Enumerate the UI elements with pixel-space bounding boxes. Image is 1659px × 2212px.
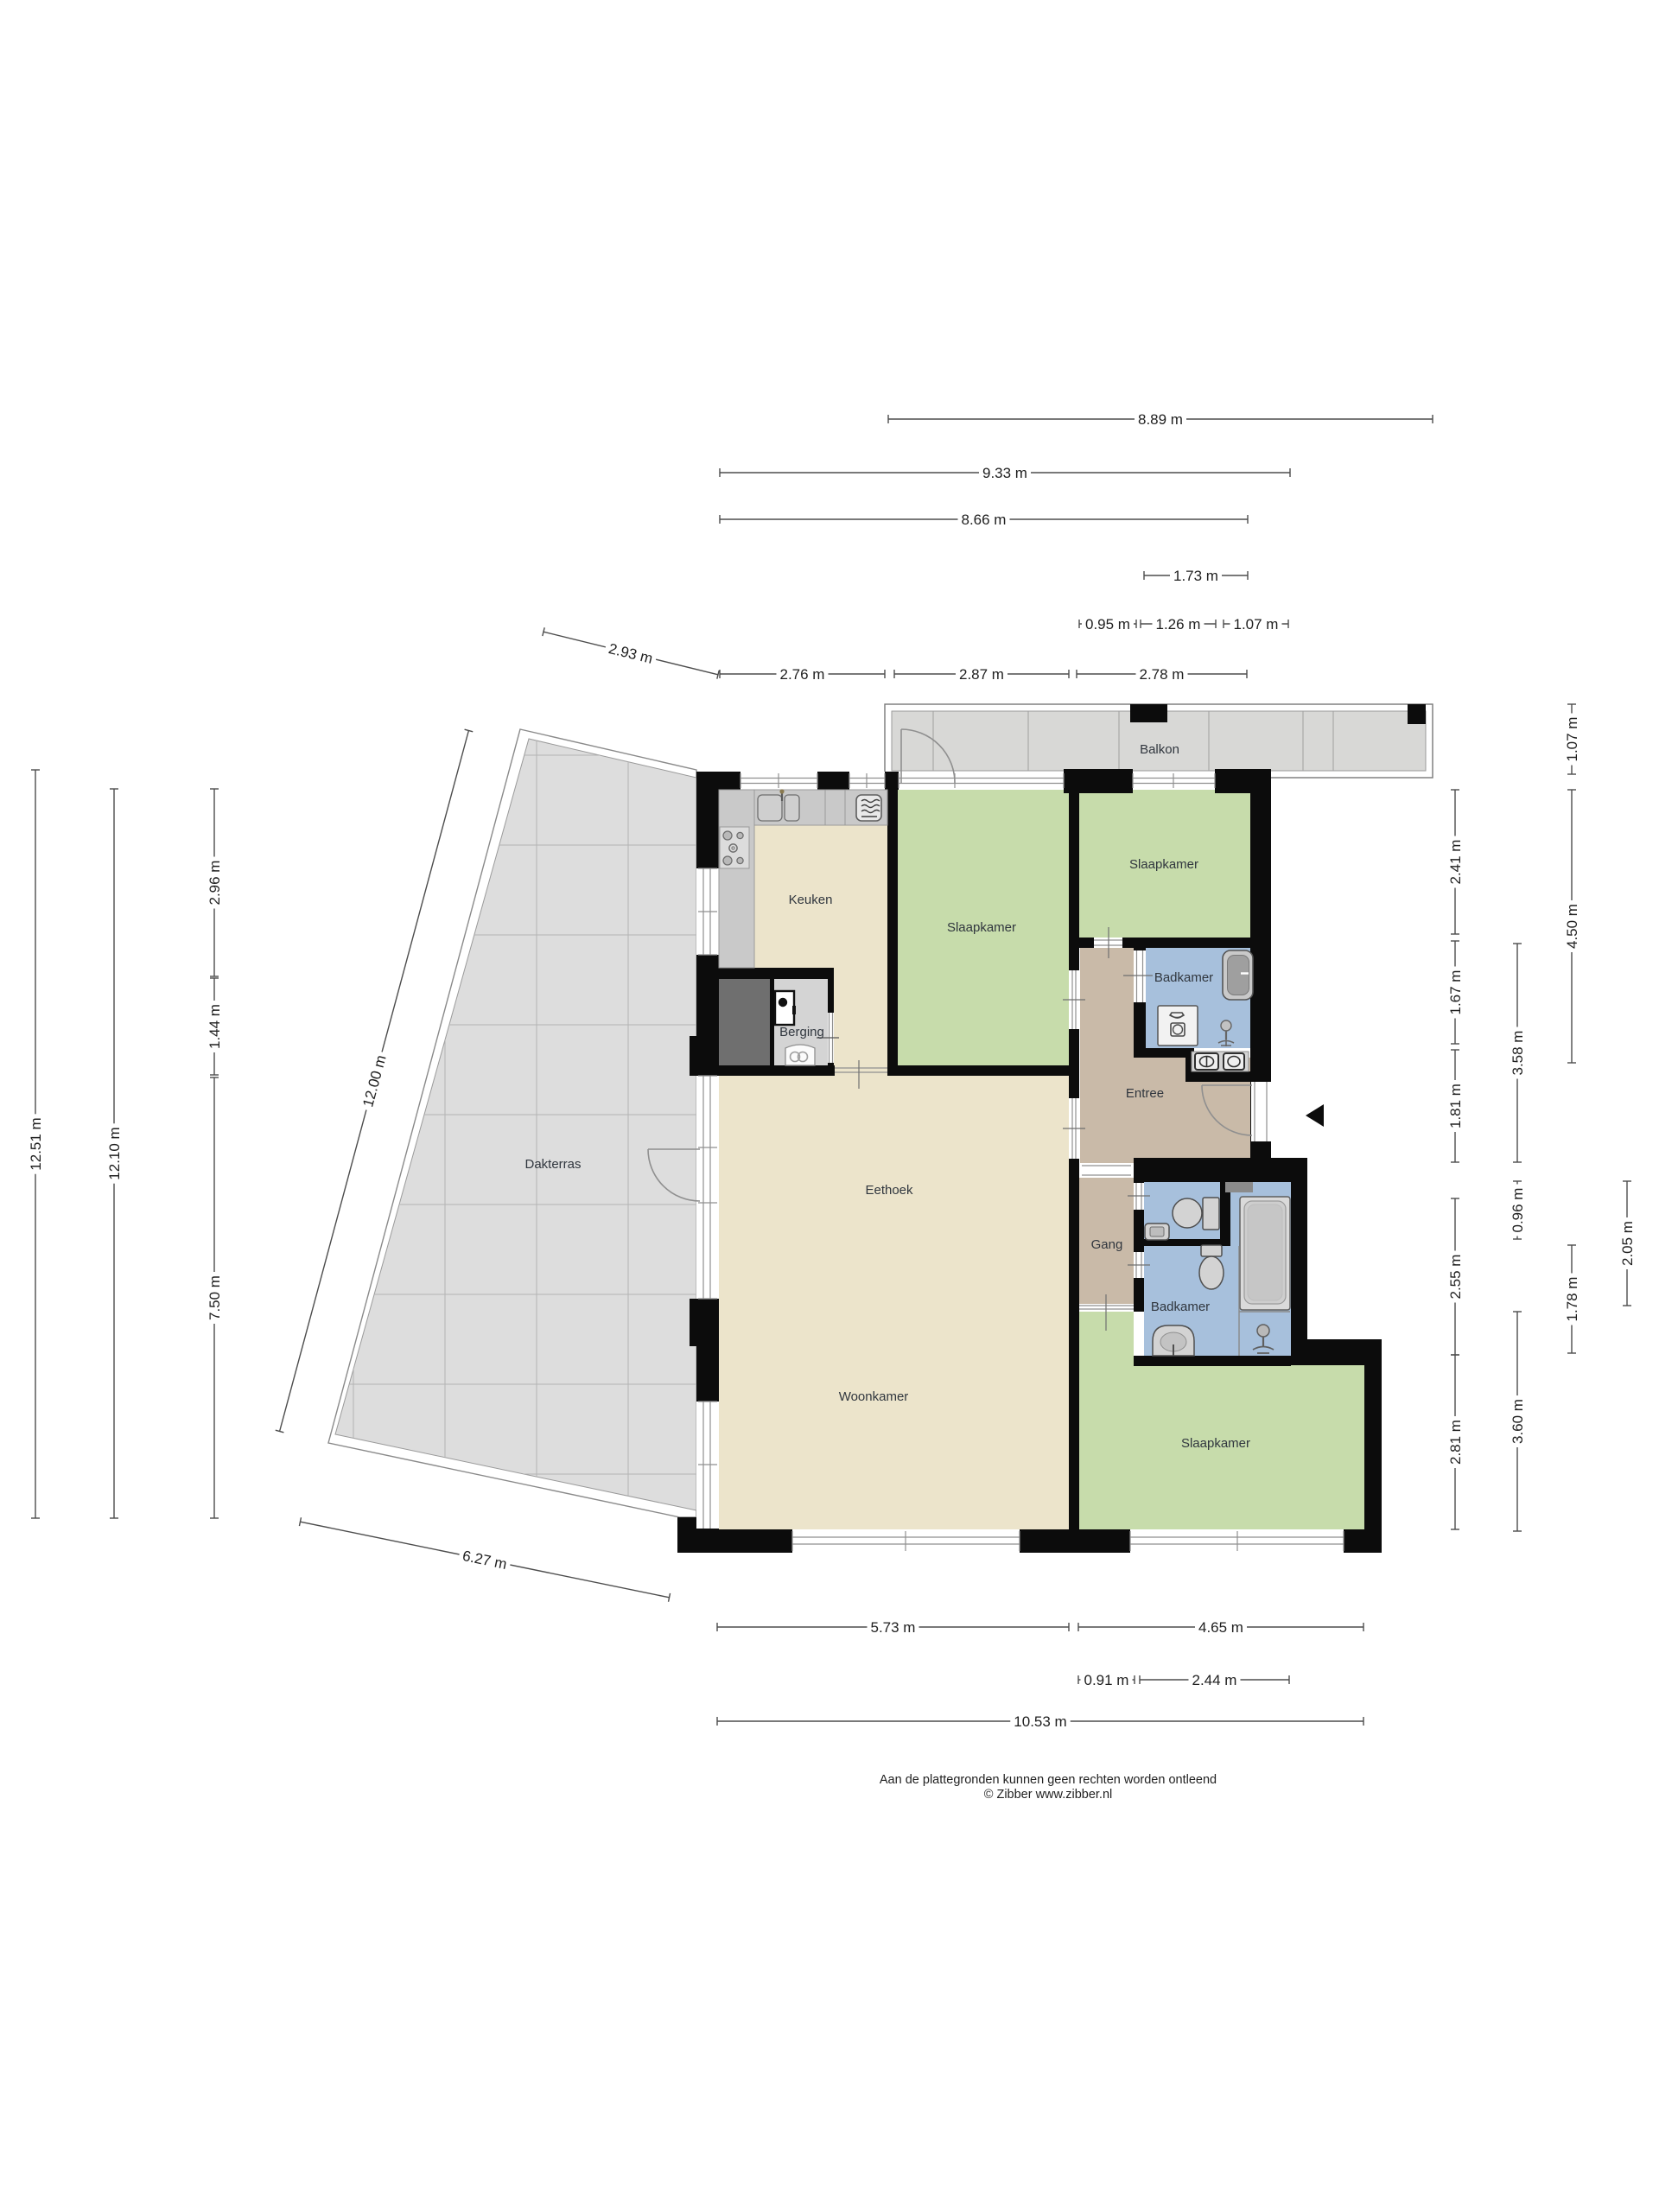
svg-text:2.87 m: 2.87 m (959, 666, 1004, 683)
svg-text:Gang: Gang (1091, 1237, 1123, 1252)
svg-text:1.44 m: 1.44 m (207, 1004, 223, 1049)
svg-text:1.67 m: 1.67 m (1447, 970, 1464, 1015)
svg-text:Aan de plattegronden kunnen ge: Aan de plattegronden kunnen geen rechten… (880, 1773, 1217, 1787)
svg-text:0.91 m: 0.91 m (1084, 1672, 1129, 1688)
svg-text:Berging: Berging (779, 1025, 824, 1039)
svg-text:4.65 m: 4.65 m (1198, 1619, 1243, 1636)
svg-text:2.81 m: 2.81 m (1447, 1420, 1464, 1465)
svg-text:3.60 m: 3.60 m (1510, 1399, 1526, 1444)
svg-text:Badkamer: Badkamer (1151, 1300, 1210, 1314)
svg-text:3.58 m: 3.58 m (1510, 1031, 1526, 1076)
svg-text:2.05 m: 2.05 m (1619, 1221, 1636, 1266)
svg-text:2.96 m: 2.96 m (207, 861, 223, 906)
svg-text:Balkon: Balkon (1140, 742, 1179, 757)
svg-text:Slaapkamer: Slaapkamer (1129, 857, 1198, 872)
svg-text:4.50 m: 4.50 m (1564, 904, 1580, 949)
svg-text:10.53 m: 10.53 m (1014, 1713, 1066, 1730)
svg-text:Slaapkamer: Slaapkamer (947, 920, 1016, 935)
svg-text:1.07 m: 1.07 m (1234, 616, 1279, 632)
svg-text:Slaapkamer: Slaapkamer (1181, 1436, 1250, 1451)
svg-text:2.44 m: 2.44 m (1192, 1672, 1237, 1688)
svg-text:9.33 m: 9.33 m (982, 465, 1027, 481)
svg-text:Dakterras: Dakterras (524, 1157, 581, 1172)
svg-text:1.81 m: 1.81 m (1447, 1084, 1464, 1128)
svg-text:Eethoek: Eethoek (865, 1183, 913, 1198)
svg-text:1.07 m: 1.07 m (1564, 717, 1580, 762)
svg-text:1.73 m: 1.73 m (1173, 568, 1218, 584)
svg-text:Woonkamer: Woonkamer (839, 1389, 909, 1404)
svg-text:2.76 m: 2.76 m (780, 666, 825, 683)
svg-text:Entree: Entree (1126, 1086, 1164, 1101)
svg-text:1.78 m: 1.78 m (1564, 1277, 1580, 1322)
svg-text:1.26 m: 1.26 m (1156, 616, 1201, 632)
svg-text:0.96 m: 0.96 m (1510, 1188, 1526, 1233)
svg-text:8.66 m: 8.66 m (962, 512, 1007, 528)
svg-text:2.78 m: 2.78 m (1140, 666, 1185, 683)
svg-text:2.41 m: 2.41 m (1447, 840, 1464, 885)
svg-text:5.73 m: 5.73 m (871, 1619, 916, 1636)
svg-text:12.10 m: 12.10 m (106, 1127, 123, 1179)
svg-text:0.95 m: 0.95 m (1085, 616, 1130, 632)
svg-text:7.50 m: 7.50 m (207, 1275, 223, 1320)
svg-text:Badkamer: Badkamer (1154, 970, 1213, 985)
svg-text:12.51 m: 12.51 m (28, 1117, 44, 1170)
svg-text:2.55 m: 2.55 m (1447, 1255, 1464, 1300)
svg-text:Keuken: Keuken (789, 893, 833, 907)
svg-text:8.89 m: 8.89 m (1138, 411, 1183, 428)
svg-text:© Zibber www.zibber.nl: © Zibber www.zibber.nl (984, 1788, 1113, 1802)
